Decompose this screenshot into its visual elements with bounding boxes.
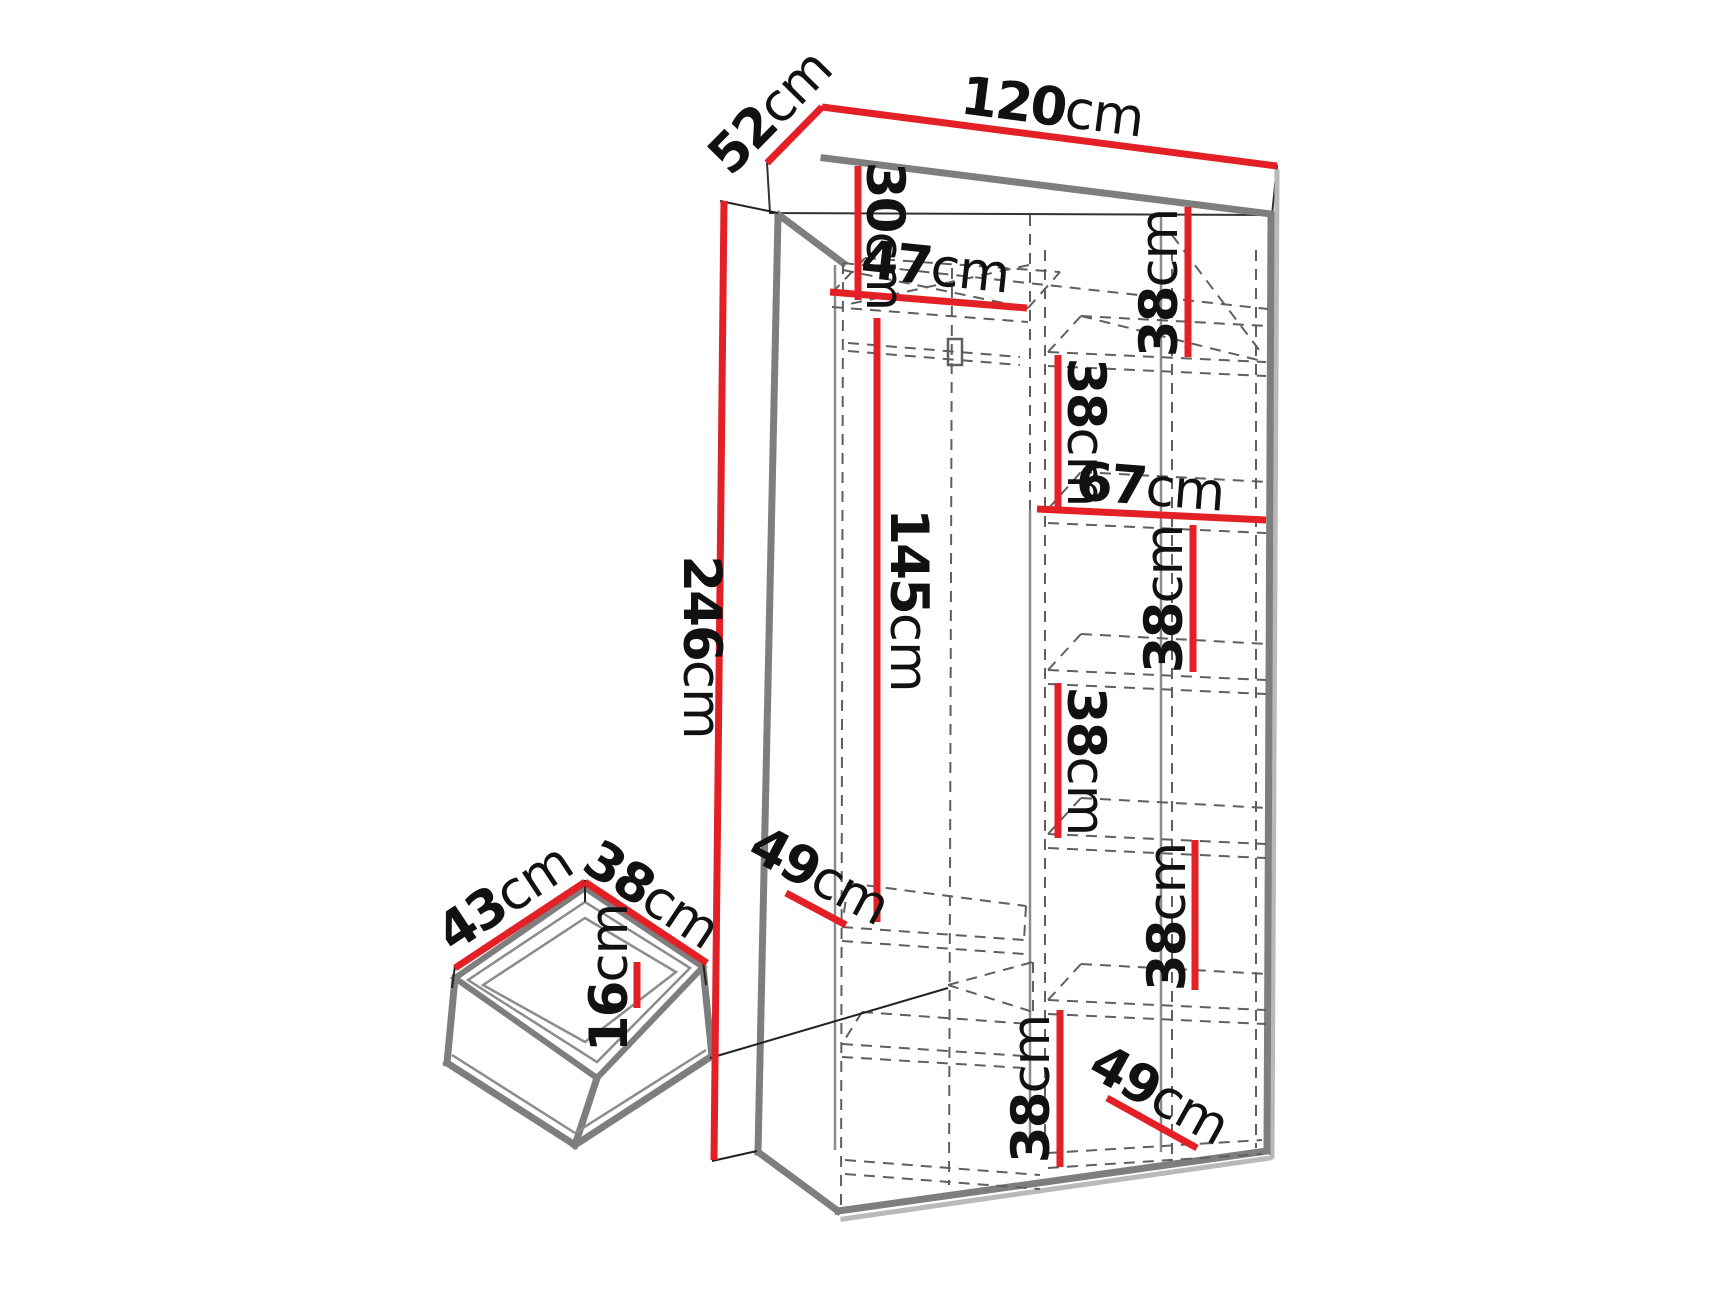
dim-label-right-shelf-depth: 49cm xyxy=(1080,1032,1240,1157)
drawer-left-corner-edge xyxy=(447,978,455,1063)
dim-label-right-width: 67cm xyxy=(1074,451,1227,523)
dim-value: 16 xyxy=(579,982,640,1052)
dim-value: 38 xyxy=(1137,922,1198,992)
slot-edge xyxy=(948,985,1033,1012)
shelf-side-edge xyxy=(1048,964,1081,1000)
dim-unit: cm xyxy=(928,236,1013,305)
dim-unit: cm xyxy=(1137,843,1198,922)
shelf-side-edge xyxy=(1024,906,1026,940)
slot-edge xyxy=(948,962,1033,985)
dim-value: 67 xyxy=(1074,451,1148,517)
dim-label-drawer-height: 16cm xyxy=(579,904,640,1053)
shelf-side-edge xyxy=(1048,316,1081,352)
back-left-corner xyxy=(841,263,843,1205)
shelf-front-edge xyxy=(1048,1000,1266,1010)
shelf-front-lower xyxy=(842,941,1024,954)
dim-unit: cm xyxy=(1129,209,1190,288)
dim-value: 38 xyxy=(1001,1094,1062,1164)
left-panel-top-edge xyxy=(779,215,843,263)
left-front-edge xyxy=(758,216,778,1152)
diagram-canvas: 52cm 120cm 246cm 30cm 47cm 145cm 38cm 38… xyxy=(0,0,1726,1294)
drawer-pointer-line xyxy=(710,988,948,1058)
dim-unit: cm xyxy=(1134,525,1195,604)
right-front-edge xyxy=(1267,216,1271,1151)
dim-unit: cm xyxy=(671,660,732,739)
mid-back-vertical xyxy=(949,268,952,1185)
drawer-bottom-left-edge xyxy=(447,1063,575,1145)
shelf-front-lower xyxy=(842,1057,1024,1068)
dim-unit: cm xyxy=(1061,79,1147,150)
wardrobe-dimension-diagram: 52cm 120cm 246cm 30cm 47cm 145cm 38cm 38… xyxy=(0,0,1726,1294)
dim-value: 38 xyxy=(1134,604,1195,674)
shelf-side-edge xyxy=(1048,634,1081,670)
dim-value: 145 xyxy=(878,508,939,613)
dim-label-shelf-gap-4: 38cm xyxy=(1055,687,1116,836)
dim-unit: cm xyxy=(1143,456,1226,523)
dim-label-shelf-gap-3: 38cm xyxy=(1134,525,1195,674)
dim-unit: cm xyxy=(1055,756,1116,835)
drawer-slot-marker xyxy=(948,962,1033,1012)
left-panel-bottom-edge xyxy=(758,1152,838,1211)
dim-label-shelf-gap-5: 38cm xyxy=(1137,843,1198,992)
dim-unit: cm xyxy=(878,613,939,692)
dim-unit: cm xyxy=(1001,1015,1062,1094)
dim-value: 47 xyxy=(858,229,934,297)
drawer-right-corner-edge xyxy=(703,967,712,1056)
dim-label-height: 246cm xyxy=(671,555,732,738)
dim-value: 30 xyxy=(854,162,915,232)
dim-value: 246 xyxy=(671,555,732,660)
dim-label-shelf-gap-6: 38cm xyxy=(1001,1015,1062,1164)
shelf-front-edge xyxy=(842,1044,1024,1056)
dim-value: 38 xyxy=(1055,687,1116,757)
extension-line-bottom xyxy=(712,1151,757,1161)
dim-label-hanging-height: 145cm xyxy=(878,508,939,691)
dim-value: 38 xyxy=(1129,288,1190,358)
floor-edge xyxy=(1048,1140,1262,1153)
shelf-front-lower xyxy=(1048,1014,1266,1024)
drawer-bottom-inner-left xyxy=(452,1055,575,1133)
shelf-front-edge xyxy=(1048,834,1266,844)
dim-label-shelf-gap-1: 38cm xyxy=(1129,209,1190,358)
dim-value: 38 xyxy=(1055,358,1116,428)
dim-unit: cm xyxy=(579,904,640,983)
